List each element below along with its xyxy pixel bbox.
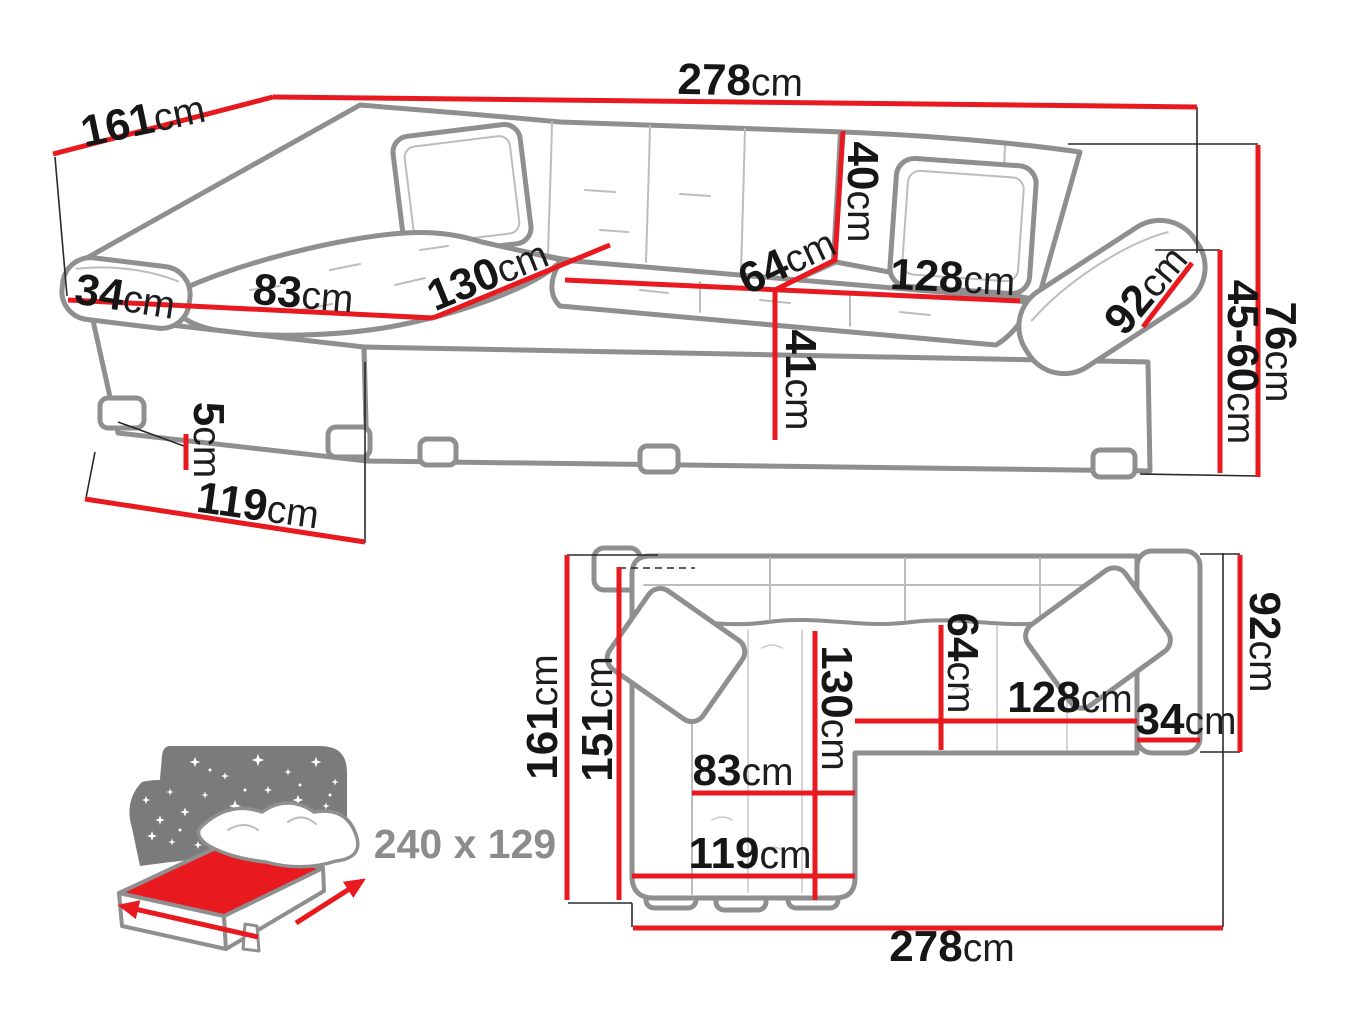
dim-label-plan-seat-width: 128cm <box>1007 673 1132 722</box>
dim-label-plan-right-arm-width: 34cm <box>1136 695 1237 744</box>
dim-label-total-width: 278cm <box>677 55 803 106</box>
sofa-leg <box>420 439 456 465</box>
dim-label-plan-chaise-front-width: 119cm <box>689 829 812 878</box>
sofa-leg <box>1093 450 1135 477</box>
sleeping-dimensions-label: 240 x 129 <box>374 821 556 867</box>
dim-label-plan-inner-depth: 151cm <box>573 656 622 781</box>
sofa-leg <box>328 427 370 457</box>
dim-label-plan-seat-depth: 64cm <box>938 613 987 714</box>
dim-label-total-depth: 161cm <box>77 83 210 157</box>
dim-label-seat-height: 41cm <box>776 330 825 431</box>
dim-label-chaise-front-width: 119cm <box>194 473 323 539</box>
dim-label-plan-chaise-cushion-width: 83cm <box>693 746 794 795</box>
dim-label-leg-height: 5cm <box>184 402 233 478</box>
sofa-plan-drawing <box>594 548 1200 910</box>
dim-label-plan-chaise-length: 130cm <box>812 645 861 770</box>
perspective-view: 161cm 278cm 34cm 83cm 130cm 64cm 40cm 12… <box>53 55 1305 543</box>
sofa-leg <box>640 446 678 472</box>
dim-label-backrest-height: 40cm <box>838 142 887 243</box>
bed-icon <box>119 746 362 951</box>
dim-label-plan-right-arm-depth: 92cm <box>1240 592 1289 693</box>
plan-view: 161cm 151cm 130cm 64cm 128cm 34cm 92cm 8… <box>518 548 1289 971</box>
sleeping-function-badge: 240 x 129 <box>119 746 556 951</box>
dim-label-plan-total-depth: 161cm <box>518 654 567 779</box>
dim-label-plan-total-width: 278cm <box>889 922 1014 971</box>
sofa-dimension-diagram: 161cm 278cm 34cm 83cm 130cm 64cm 40cm 12… <box>0 0 1368 1026</box>
sofa-base-main <box>364 347 1150 471</box>
dim-label-total-height: 76cm <box>1256 302 1305 403</box>
